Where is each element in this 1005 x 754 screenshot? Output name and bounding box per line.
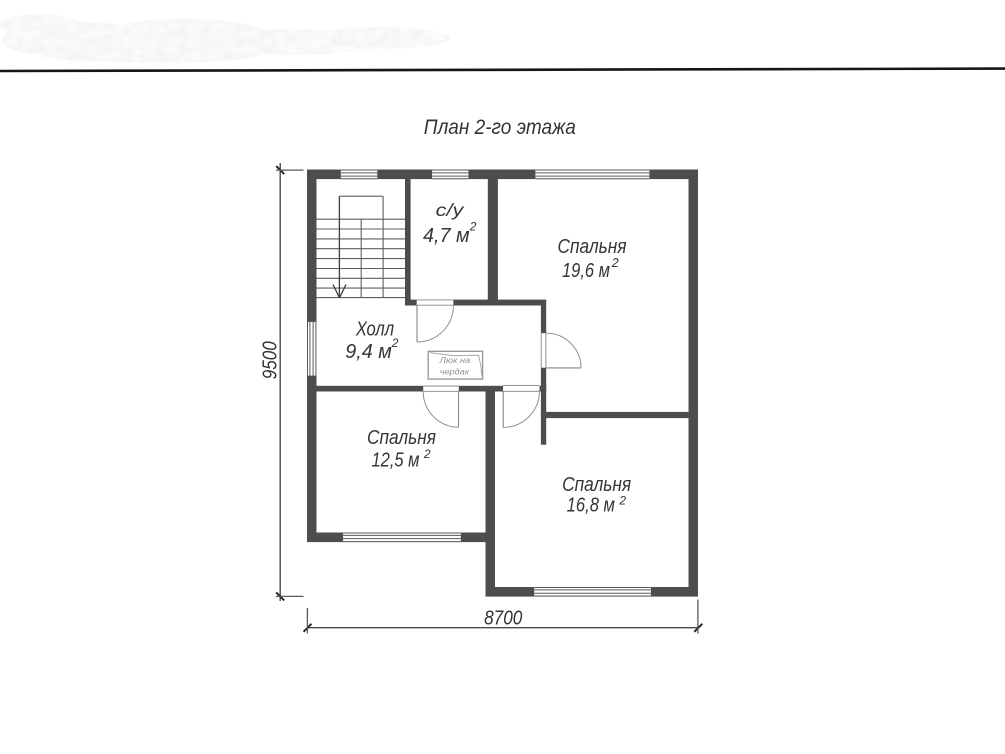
- svg-text:чердак: чердак: [440, 367, 471, 376]
- svg-text:Люк на: Люк на: [439, 356, 471, 365]
- svg-text:План 2-го этажа: План 2-го этажа: [424, 116, 576, 139]
- svg-text:2: 2: [423, 447, 431, 461]
- svg-text:2: 2: [618, 494, 626, 508]
- svg-text:2: 2: [391, 336, 399, 350]
- svg-text:12,5 м: 12,5 м: [372, 450, 420, 472]
- svg-text:Холл: Холл: [355, 319, 394, 341]
- svg-text:19,6 м: 19,6 м: [562, 260, 610, 282]
- svg-text:9500: 9500: [260, 341, 282, 379]
- svg-text:2: 2: [469, 220, 477, 234]
- svg-text:2: 2: [611, 256, 619, 270]
- svg-text:9,4 м: 9,4 м: [345, 341, 392, 363]
- svg-text:4,7 м: 4,7 м: [423, 225, 470, 247]
- svg-text:Спальня: Спальня: [558, 236, 627, 258]
- svg-text:с/у: с/у: [436, 200, 465, 220]
- svg-text:8700: 8700: [484, 608, 522, 630]
- svg-text:16,8 м: 16,8 м: [567, 495, 616, 517]
- svg-text:Спальня: Спальня: [367, 427, 436, 449]
